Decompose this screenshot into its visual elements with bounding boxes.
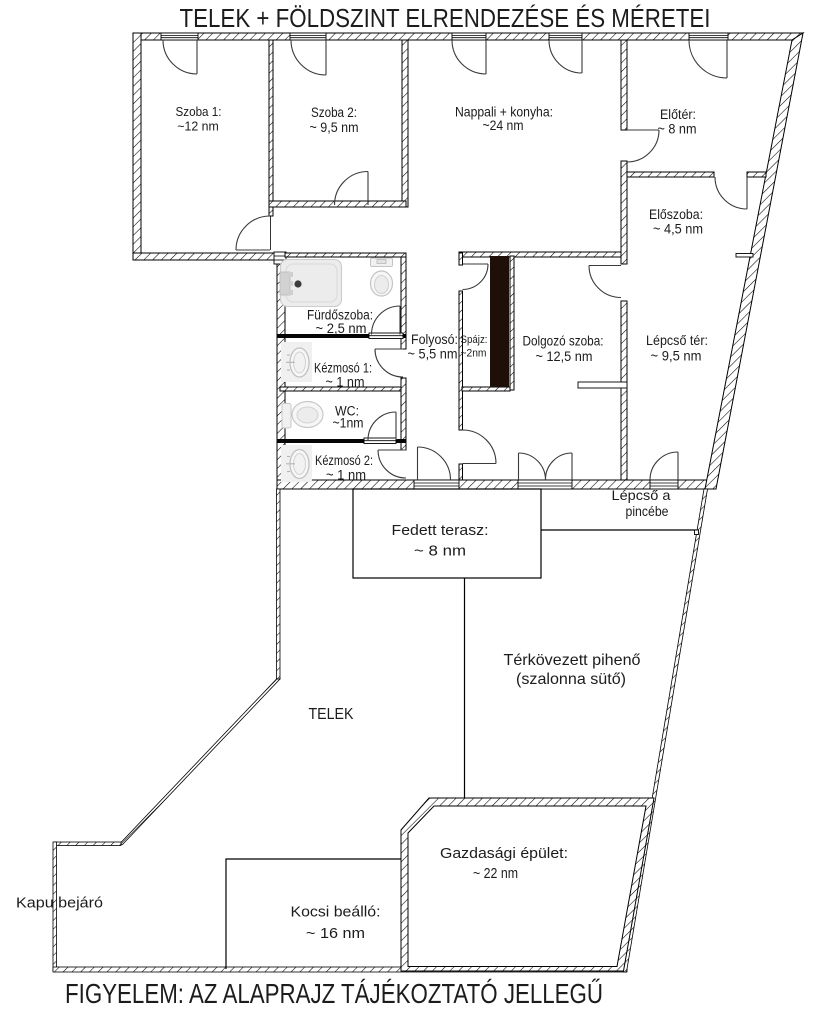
svg-text:~12 nm: ~12 nm xyxy=(177,119,219,134)
svg-text:Kapu bejáró: Kapu bejáró xyxy=(16,895,103,912)
svg-text:Dolgozó szoba:: Dolgozó szoba: xyxy=(523,333,604,349)
svg-text:~ 8 nm: ~ 8 nm xyxy=(414,543,466,560)
svg-text:Gazdasági épület:: Gazdasági épület: xyxy=(440,845,568,862)
svg-text:~24 nm: ~24 nm xyxy=(483,117,524,133)
svg-text:~ 9,5 nm: ~ 9,5 nm xyxy=(651,348,702,364)
svg-text:~2nm: ~2nm xyxy=(461,348,487,360)
svg-text:TELEK: TELEK xyxy=(309,706,354,723)
svg-text:Előszoba:: Előszoba: xyxy=(649,207,703,222)
svg-text:~ 1 nm: ~ 1 nm xyxy=(326,375,365,390)
svg-text:~ 2,5 nm: ~ 2,5 nm xyxy=(316,321,367,336)
svg-text:pincébe: pincébe xyxy=(626,503,669,519)
svg-text:Kézmosó 1:: Kézmosó 1: xyxy=(314,361,372,376)
svg-text:Térkövezett pihenő: Térkövezett pihenő xyxy=(504,652,641,669)
svg-text:TELEK + FÖLDSZINT ELRENDEZÉSE: TELEK + FÖLDSZINT ELRENDEZÉSE ÉS MÉRETEI xyxy=(180,3,711,33)
svg-text:~ 9,5 nm: ~ 9,5 nm xyxy=(310,120,359,135)
svg-text:(szalonna sütő): (szalonna sütő) xyxy=(516,671,626,688)
svg-text:Kézmosó 2:: Kézmosó 2: xyxy=(315,453,373,468)
svg-text:Szoba 2:: Szoba 2: xyxy=(311,105,357,120)
svg-text:~1nm: ~1nm xyxy=(333,416,364,431)
svg-text:Szoba 1:: Szoba 1: xyxy=(176,104,222,119)
svg-text:~ 16 nm: ~ 16 nm xyxy=(306,925,365,942)
svg-text:~ 12,5 nm: ~ 12,5 nm xyxy=(536,348,593,364)
svg-text:Lépcső a: Lépcső a xyxy=(612,487,671,503)
svg-text:~ 4,5 nm: ~ 4,5 nm xyxy=(653,222,703,237)
svg-text:Spájz:: Spájz: xyxy=(461,334,488,346)
svg-text:~ 22 nm: ~ 22 nm xyxy=(473,865,518,882)
svg-text:Folyosó:: Folyosó: xyxy=(411,332,458,347)
svg-text:~ 8 nm: ~ 8 nm xyxy=(658,122,697,137)
svg-text:Kocsi beálló:: Kocsi beálló: xyxy=(291,904,381,921)
svg-text:Előtér:: Előtér: xyxy=(660,107,696,122)
svg-text:FIGYELEM: AZ ALAPRAJZ TÁJÉKOZT: FIGYELEM: AZ ALAPRAJZ TÁJÉKOZTATÓ JELLEG… xyxy=(65,978,603,1009)
svg-text:Lépcső tér:: Lépcső tér: xyxy=(646,332,708,348)
svg-text:Fedett terasz:: Fedett terasz: xyxy=(392,522,489,539)
svg-text:~ 1 nm: ~ 1 nm xyxy=(326,468,366,483)
svg-text:~ 5,5 nm: ~ 5,5 nm xyxy=(408,347,458,362)
